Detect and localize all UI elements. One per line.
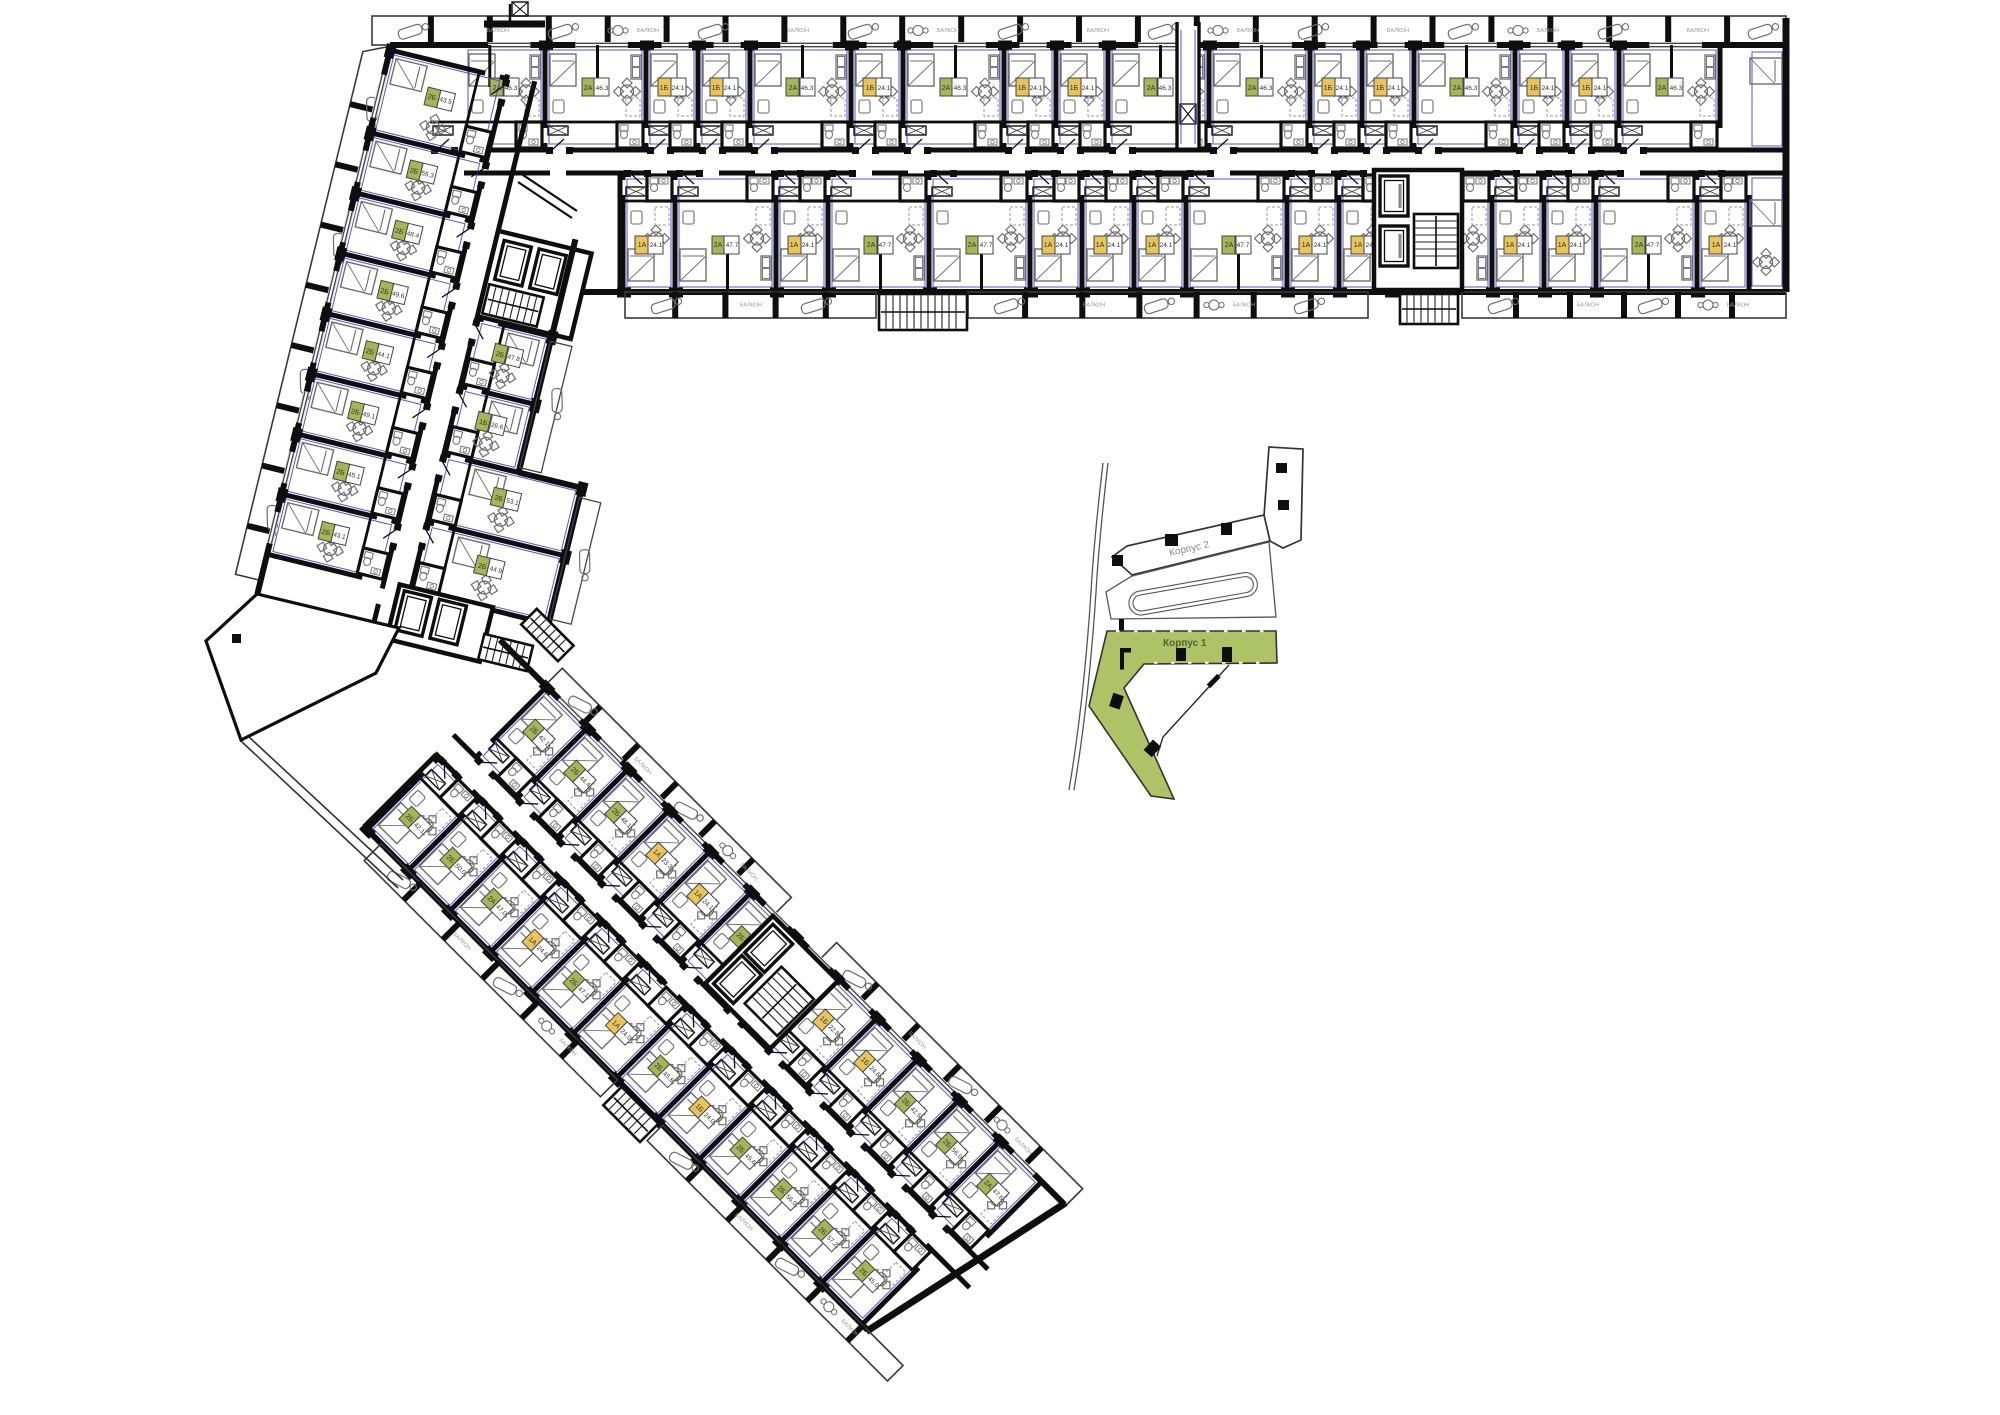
svg-text:1Б: 1Б — [1070, 85, 1079, 92]
svg-text:1Б: 1Б — [1018, 85, 1027, 92]
svg-text:БАЛКОН: БАЛКОН — [1687, 28, 1709, 34]
svg-text:24.1: 24.1 — [878, 85, 891, 92]
svg-text:24.1: 24.1 — [1056, 242, 1069, 249]
svg-text:24.1: 24.1 — [1542, 85, 1555, 92]
svg-text:2А: 2А — [1147, 85, 1156, 92]
svg-text:24.1: 24.1 — [1594, 85, 1607, 92]
svg-text:24.1: 24.1 — [1030, 85, 1043, 92]
svg-text:БАЛКОН: БАЛКОН — [1577, 303, 1599, 309]
svg-text:24.1: 24.1 — [1108, 242, 1121, 249]
svg-text:1А: 1А — [1354, 242, 1363, 249]
svg-text:24.1: 24.1 — [1724, 242, 1737, 249]
svg-text:БАЛКОН: БАЛКОН — [740, 303, 762, 309]
svg-text:2А: 2А — [1635, 242, 1644, 249]
svg-text:1А: 1А — [1096, 242, 1105, 249]
svg-text:БАЛКОН: БАЛКОН — [1237, 28, 1259, 34]
svg-text:2А: 2А — [867, 242, 876, 249]
svg-text:24.1: 24.1 — [1388, 85, 1401, 92]
svg-text:1А: 1А — [1148, 242, 1157, 249]
svg-text:БАЛКОН: БАЛКОН — [1537, 28, 1559, 34]
svg-text:24.1: 24.1 — [650, 242, 663, 249]
svg-text:47.7: 47.7 — [726, 242, 739, 249]
svg-text:1Б: 1Б — [1376, 85, 1385, 92]
svg-text:БАЛКОН: БАЛКОН — [787, 28, 809, 34]
svg-text:2А: 2А — [789, 85, 798, 92]
svg-text:47.7: 47.7 — [1237, 242, 1250, 249]
svg-text:47.7: 47.7 — [980, 242, 993, 249]
svg-text:1Б: 1Б — [1324, 85, 1333, 92]
svg-text:24.1: 24.1 — [1518, 242, 1531, 249]
svg-text:24.1: 24.1 — [802, 242, 815, 249]
svg-text:24.1: 24.1 — [1314, 242, 1327, 249]
svg-text:1А: 1А — [638, 242, 647, 249]
svg-text:1А: 1А — [1712, 242, 1721, 249]
svg-text:46.3: 46.3 — [596, 85, 609, 92]
svg-text:1Б: 1Б — [1530, 85, 1539, 92]
svg-text:24.1: 24.1 — [672, 85, 685, 92]
svg-text:1А: 1А — [1302, 242, 1311, 249]
svg-text:46.3: 46.3 — [1670, 85, 1683, 92]
svg-text:2А: 2А — [1248, 85, 1257, 92]
svg-text:46.3: 46.3 — [1159, 85, 1172, 92]
svg-text:24.1: 24.1 — [1160, 242, 1173, 249]
svg-text:1Б: 1Б — [1582, 85, 1591, 92]
svg-text:БАЛКОН: БАЛКОН — [937, 28, 959, 34]
svg-text:1Б: 1Б — [712, 85, 721, 92]
svg-text:1А: 1А — [1506, 242, 1515, 249]
svg-text:1А: 1А — [790, 242, 799, 249]
svg-text:БАЛКОН: БАЛКОН — [1083, 303, 1105, 309]
svg-text:Корпус 1: Корпус 1 — [1163, 638, 1207, 649]
svg-text:2А: 2А — [1225, 242, 1234, 249]
svg-text:2А: 2А — [1453, 85, 1462, 92]
svg-text:2А: 2А — [942, 85, 951, 92]
svg-text:2А: 2А — [714, 242, 723, 249]
svg-text:БАЛКОН: БАЛКОН — [1233, 303, 1255, 309]
svg-text:46.3: 46.3 — [1260, 85, 1273, 92]
svg-text:47.7: 47.7 — [1647, 242, 1660, 249]
svg-text:46.3: 46.3 — [1465, 85, 1478, 92]
svg-text:1А: 1А — [1558, 242, 1567, 249]
svg-text:24.1: 24.1 — [1082, 85, 1095, 92]
svg-text:1А: 1А — [1044, 242, 1053, 249]
svg-text:1Б: 1Б — [660, 85, 669, 92]
svg-text:24.1: 24.1 — [1336, 85, 1349, 92]
svg-text:2А: 2А — [584, 85, 593, 92]
svg-text:БАЛКОН: БАЛКОН — [487, 28, 509, 34]
svg-text:БАЛКОН: БАЛКОН — [1727, 303, 1749, 309]
svg-text:46.3: 46.3 — [954, 85, 967, 92]
svg-text:БАЛКОН: БАЛКОН — [1087, 28, 1109, 34]
svg-text:46.3: 46.3 — [801, 85, 814, 92]
svg-text:47.7: 47.7 — [879, 242, 892, 249]
svg-text:1Б: 1Б — [866, 85, 875, 92]
svg-text:24.1: 24.1 — [724, 85, 737, 92]
svg-text:БАЛКОН: БАЛКОН — [1387, 28, 1409, 34]
svg-text:24.1: 24.1 — [1570, 242, 1583, 249]
svg-text:2А: 2А — [1658, 85, 1667, 92]
svg-text:БАЛКОН: БАЛКОН — [637, 28, 659, 34]
svg-text:2А: 2А — [968, 242, 977, 249]
